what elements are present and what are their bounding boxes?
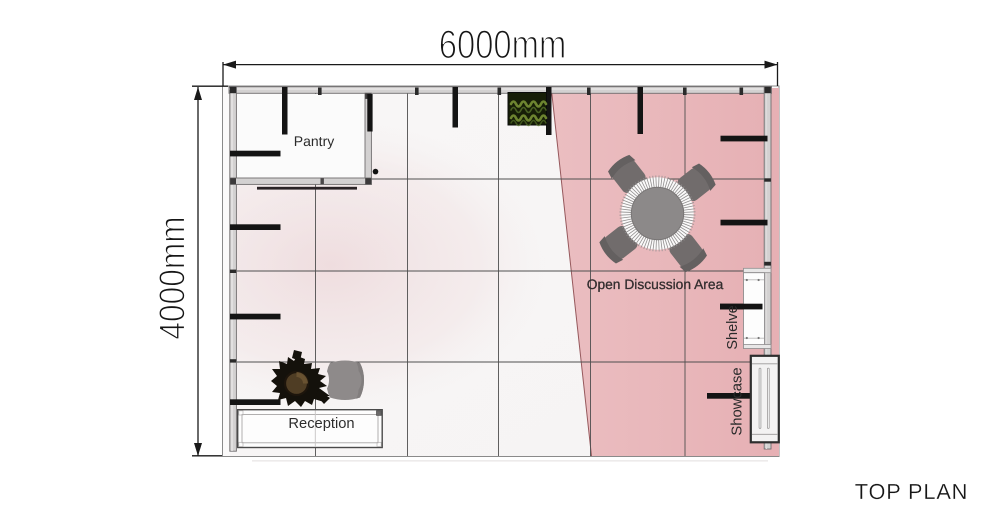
svg-text:4000mm: 4000mm	[153, 216, 193, 339]
svg-text:6000mm: 6000mm	[439, 22, 567, 67]
svg-text:Showcase: Showcase	[730, 367, 746, 435]
svg-text:Reception: Reception	[288, 416, 354, 432]
svg-text:TOP PLAN: TOP PLAN	[855, 479, 968, 504]
svg-text:Pantry: Pantry	[294, 133, 334, 149]
svg-text:Shelve: Shelve	[725, 305, 741, 349]
svg-text:Open Discussion Area: Open Discussion Area	[587, 277, 724, 292]
